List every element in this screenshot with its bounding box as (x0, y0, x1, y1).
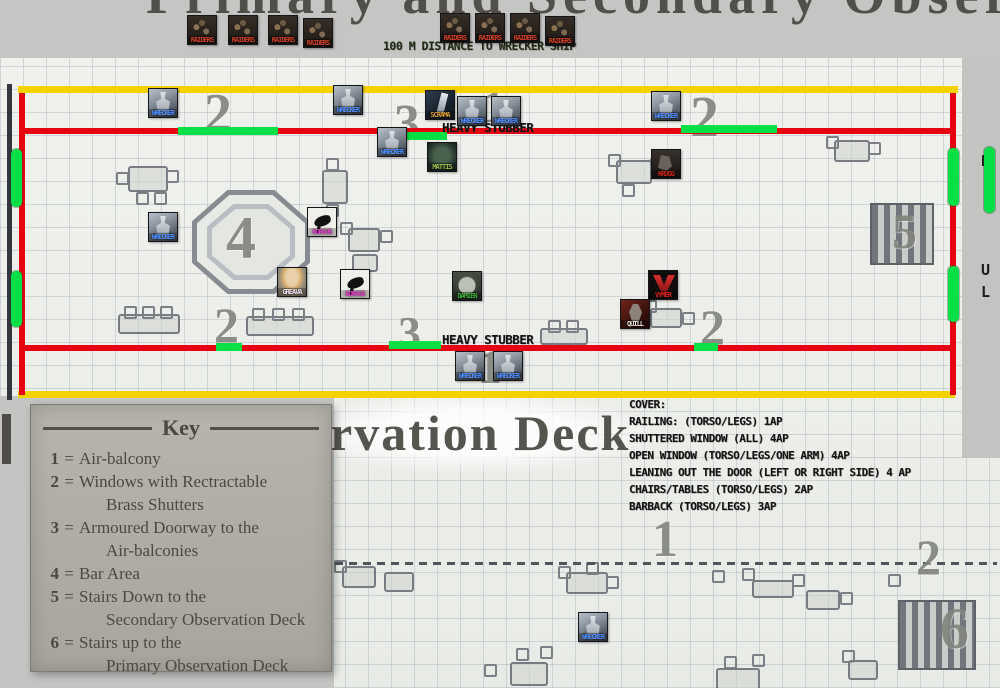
token-label: RAIDERS (546, 37, 574, 45)
token-label: RAIDERS (304, 39, 332, 47)
table-sketch (322, 170, 348, 204)
chair-sketch (868, 142, 881, 155)
key-rule-right (210, 427, 319, 430)
token-label: RAIDERS (476, 34, 504, 42)
map-token-raiders[interactable]: RAIDERS (187, 15, 217, 45)
cover-rule-line: SHUTTERED WINDOW (ALL) 4AP (629, 430, 911, 447)
cover-rule-line: RAILING: (TORSO/LEGS) 1AP (629, 413, 911, 430)
chair-sketch (160, 306, 173, 319)
table-sketch (128, 166, 168, 192)
map-edge-line (7, 84, 12, 400)
token-label: WRECKER (494, 372, 522, 380)
chair-sketch (116, 172, 129, 185)
map-token-wrecker[interactable]: WRECKER (491, 96, 521, 126)
key-entry-text: Stairs Down to the (79, 585, 331, 608)
key-entry-continuation: Primary Observation Deck (31, 654, 331, 677)
page-right-margin (962, 58, 1000, 458)
key-entry-continuation: Brass Shutters (31, 493, 331, 516)
window-marker (178, 127, 278, 135)
token-label: MATTIS (428, 163, 456, 171)
chair-sketch (292, 308, 305, 321)
key-entry-number: 1 (31, 447, 59, 470)
chair-sketch (484, 664, 497, 677)
token-label: RAIDERS (511, 34, 539, 42)
map-token-korvus[interactable]: KORVUS (340, 269, 370, 299)
map-token-damien[interactable]: DAMIEN (452, 271, 482, 301)
map-number-2: 2 (916, 532, 941, 582)
token-label: GREAVA (278, 288, 306, 296)
table-sketch (848, 660, 878, 680)
cover-rule-line: COVER: (629, 396, 911, 413)
cover-rules-block: COVER:RAILING: (TORSO/LEGS) 1APSHUTTERED… (629, 396, 911, 515)
map-token-wrecker[interactable]: WRECKER (493, 351, 523, 381)
window-marker (681, 125, 777, 133)
map-token-wrecker[interactable]: WRECKER (651, 91, 681, 121)
chair-sketch (566, 320, 579, 333)
map-number-2: 2 (690, 88, 719, 146)
chair-sketch (272, 308, 285, 321)
edge-letter-l: L (981, 283, 990, 301)
chair-sketch (608, 154, 621, 167)
key-entry-number: 3 (31, 516, 59, 539)
chair-sketch (166, 170, 179, 183)
token-label: RAIDERS (188, 36, 216, 44)
chair-sketch (326, 158, 339, 171)
chair-sketch (888, 574, 901, 587)
key-entry-equals: = (59, 470, 79, 493)
map-token-wrecker[interactable]: WRECKER (333, 85, 363, 115)
key-title: Key (152, 415, 210, 441)
chair-sketch (712, 570, 725, 583)
key-entry-continuation: Air-balconies (31, 539, 331, 562)
chair-sketch (540, 646, 553, 659)
token-label: WRECKER (458, 117, 486, 125)
map-token-krugg[interactable]: KRUGG (651, 149, 681, 179)
chair-sketch (142, 306, 155, 319)
window-marker (984, 147, 995, 213)
deck-title-partial: rvation Deck (330, 404, 630, 462)
map-token-raiders[interactable]: RAIDERS (303, 18, 333, 48)
key-entry-5: 5=Stairs Down to the (31, 585, 331, 608)
key-entry-number: 6 (31, 631, 59, 654)
cover-rule-line: OPEN WINDOW (TORSO/LEGS/ONE ARM) 4AP (629, 447, 911, 464)
map-token-scrama[interactable]: SCRAMA (425, 90, 455, 120)
token-label: WRECKER (456, 372, 484, 380)
map-number-6: 6 (940, 600, 969, 658)
cover-rule-line: LEANING OUT THE DOOR (LEFT OR RIGHT SIDE… (629, 464, 911, 481)
token-label: DAMIEN (453, 292, 481, 300)
cover-rule-line: BARBACK (TORSO/LEGS) 3AP (629, 498, 911, 515)
window-marker (11, 149, 22, 207)
key-entry-6: 6=Stairs up to the (31, 631, 331, 654)
map-token-wrecker[interactable]: WRECKER (377, 127, 407, 157)
token-label: WRECKER (149, 109, 177, 117)
key-entry-2: 2=Windows with Rectractable (31, 470, 331, 493)
map-token-raiders[interactable]: RAIDERS (440, 13, 470, 43)
token-label: KORVUS (341, 290, 369, 298)
token-label: RAIDERS (229, 36, 257, 44)
key-entry-text: Armoured Doorway to the (79, 516, 331, 539)
token-label: WRECKER (652, 112, 680, 120)
map-token-raiders[interactable]: RAIDERS (510, 13, 540, 43)
key-entry-continuation: Secondary Observation Deck (31, 608, 331, 631)
chair-sketch (606, 576, 619, 589)
window-marker (948, 148, 959, 206)
window-marker (694, 343, 718, 351)
heavy-stubber-label-bottom: HEAVY STUBBER (442, 332, 533, 347)
edge-letter-u: U (981, 261, 990, 279)
map-token-quill[interactable]: QUILL (620, 299, 650, 329)
map-number-1: 1 (652, 514, 678, 566)
map-token-raiders[interactable]: RAIDERS (545, 16, 575, 46)
table-sketch (834, 140, 870, 162)
map-number-4: 4 (226, 208, 256, 268)
cutoff-letter-fragment (2, 414, 11, 464)
chair-sketch (622, 184, 635, 197)
window-marker (389, 341, 441, 349)
table-sketch (716, 668, 760, 688)
token-label: SCRAMA (426, 111, 454, 119)
key-entry-equals: = (59, 562, 79, 585)
key-entry-3: 3=Armoured Doorway to the (31, 516, 331, 539)
chair-sketch (136, 192, 149, 205)
table-sketch (510, 662, 548, 686)
chair-sketch (752, 654, 765, 667)
chair-sketch (340, 222, 353, 235)
map-token-wrecker[interactable]: WRECKER (455, 351, 485, 381)
window-marker (948, 266, 959, 322)
chair-sketch (154, 192, 167, 205)
key-entry-text: Bar Area (79, 562, 331, 585)
token-label: WRECKER (149, 233, 177, 241)
key-entry-text: Air-balcony (79, 447, 331, 470)
map-token-wrecker[interactable]: WRECKER (148, 212, 178, 242)
chair-sketch (516, 648, 529, 661)
table-sketch (806, 590, 840, 610)
table-sketch (384, 572, 414, 592)
table-sketch (342, 566, 376, 588)
chair-sketch (380, 230, 393, 243)
window-marker (216, 343, 242, 351)
map-token-mattis[interactable]: MATTIS (427, 142, 457, 172)
map-token-raiders[interactable]: RAIDERS (228, 15, 258, 45)
map-token-korvus[interactable]: KORVUS (307, 207, 337, 237)
map-token-raiders[interactable]: RAIDERS (268, 15, 298, 45)
key-entry-4: 4=Bar Area (31, 562, 331, 585)
map-number-5: 5 (892, 206, 917, 256)
token-label: RAIDERS (269, 36, 297, 44)
token-label: QUILL (621, 320, 649, 328)
chair-sketch (792, 574, 805, 587)
key-entry-equals: = (59, 516, 79, 539)
key-rule-left (43, 427, 152, 430)
key-entry-text: Stairs up to the (79, 631, 331, 654)
key-entry-equals: = (59, 447, 79, 470)
key-entry-number: 2 (31, 470, 59, 493)
key-entry-number: 5 (31, 585, 59, 608)
table-sketch (616, 160, 652, 184)
map-token-raiders[interactable]: RAIDERS (475, 13, 505, 43)
map-token-wrecker[interactable]: WRECKER (457, 96, 487, 126)
table-sketch (752, 580, 794, 598)
map-key-box: Key 1=Air-balcony2=Windows with Rectract… (30, 404, 332, 672)
table-sketch (566, 572, 608, 594)
map-token-wrecker[interactable]: WRECKER (578, 612, 608, 642)
battle-map-page: Primary and Secondary Obser rvation Deck… (0, 0, 1000, 688)
token-label: KORVUS (308, 228, 336, 236)
chair-sketch (558, 566, 571, 579)
map-token-greava[interactable]: GREAVA (277, 267, 307, 297)
token-label: WRECKER (334, 106, 362, 114)
token-label: VYMER (649, 291, 677, 299)
key-entry-text: Windows with Rectractable (79, 470, 331, 493)
key-entry-number: 4 (31, 562, 59, 585)
key-entry-equals: = (59, 631, 79, 654)
token-label: WRECKER (579, 633, 607, 641)
chair-sketch (840, 592, 853, 605)
window-marker (11, 271, 22, 327)
map-token-wrecker[interactable]: WRECKER (148, 88, 178, 118)
chair-sketch (548, 320, 561, 333)
token-label: RAIDERS (441, 34, 469, 42)
key-title-row: Key (43, 415, 319, 441)
chair-sketch (252, 308, 265, 321)
key-entry-equals: = (59, 585, 79, 608)
key-entries: 1=Air-balcony2=Windows with Rectractable… (31, 447, 331, 677)
chair-sketch (124, 306, 137, 319)
map-token-vymer[interactable]: VYMER (648, 270, 678, 300)
token-label: KRUGG (652, 170, 680, 178)
chair-sketch (682, 312, 695, 325)
token-label: WRECKER (378, 148, 406, 156)
token-label: WRECKER (492, 117, 520, 125)
chair-sketch (826, 136, 839, 149)
chair-sketch (742, 568, 755, 581)
key-entry-1: 1=Air-balcony (31, 447, 331, 470)
cover-rule-line: CHAIRS/TABLES (TORSO/LEGS) 2AP (629, 481, 911, 498)
